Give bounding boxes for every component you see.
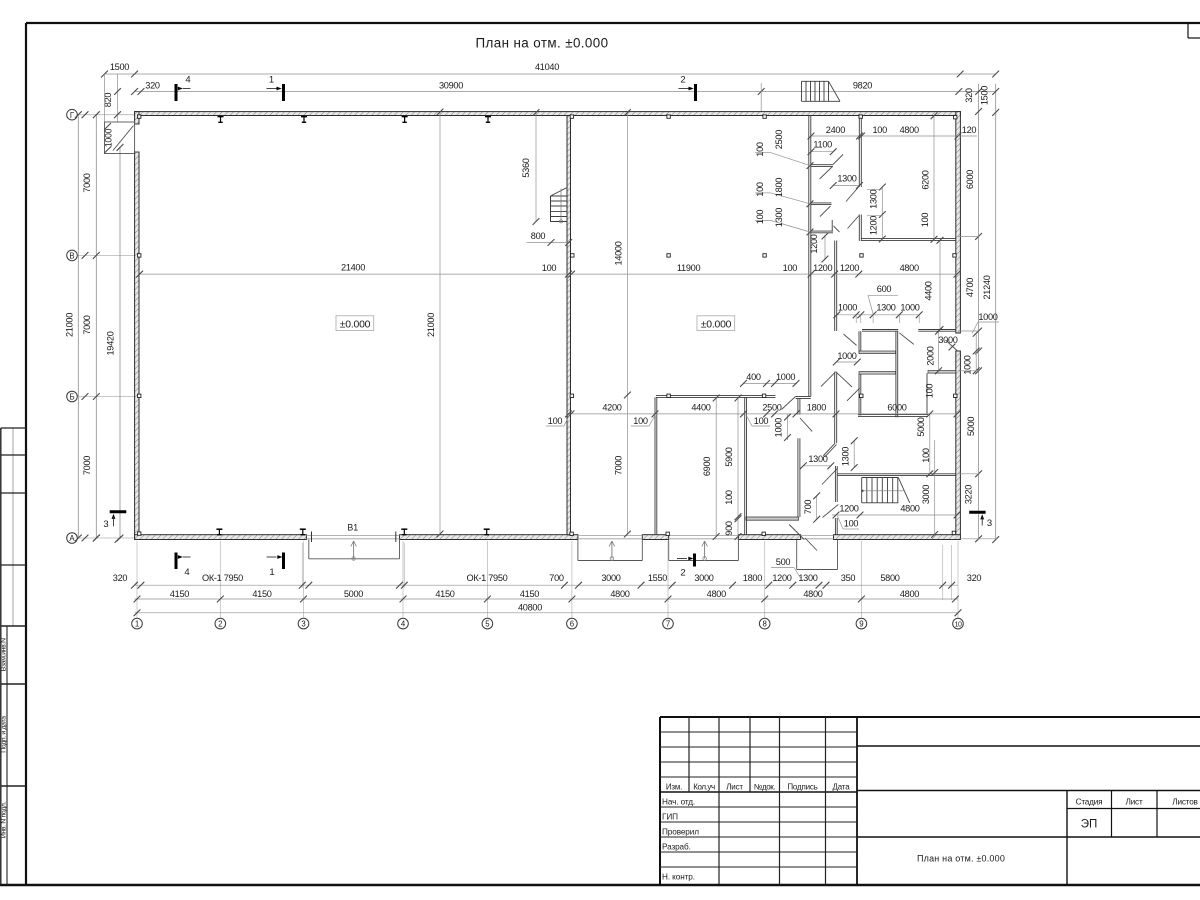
svg-text:1300: 1300 (876, 302, 895, 312)
svg-text:500: 500 (776, 557, 791, 567)
svg-text:4150: 4150 (435, 589, 454, 599)
svg-text:В: В (69, 252, 74, 261)
svg-text:1200: 1200 (839, 503, 858, 513)
svg-text:7: 7 (666, 620, 670, 629)
svg-text:1: 1 (269, 567, 274, 578)
svg-text:6: 6 (570, 620, 574, 629)
svg-text:ОК-1 7950: ОК-1 7950 (467, 573, 508, 583)
svg-text:Дата: Дата (833, 783, 851, 792)
svg-text:1300: 1300 (869, 189, 879, 208)
svg-text:9820: 9820 (853, 80, 872, 90)
svg-text:100: 100 (633, 416, 648, 426)
svg-text:5: 5 (485, 620, 490, 629)
svg-text:19420: 19420 (106, 331, 116, 355)
svg-text:5360: 5360 (521, 158, 531, 177)
svg-text:320: 320 (964, 88, 974, 103)
svg-text:4800: 4800 (900, 503, 919, 513)
svg-text:1000: 1000 (838, 302, 857, 312)
svg-text:Изм.: Изм. (666, 783, 682, 792)
svg-text:600: 600 (877, 284, 892, 294)
svg-text:100: 100 (724, 490, 734, 505)
svg-text:10: 10 (955, 622, 962, 629)
svg-text:Листов: Листов (1172, 798, 1197, 807)
svg-text:2400: 2400 (826, 125, 845, 135)
svg-text:21000: 21000 (65, 313, 75, 337)
svg-text:5800: 5800 (880, 573, 899, 583)
svg-text:1200: 1200 (813, 263, 832, 273)
svg-text:100: 100 (783, 263, 798, 273)
svg-text:7000: 7000 (82, 456, 92, 475)
svg-text:1000: 1000 (963, 355, 973, 374)
svg-text:4800: 4800 (900, 125, 919, 135)
svg-text:ОК-1 7950: ОК-1 7950 (202, 573, 243, 583)
svg-text:4: 4 (185, 75, 190, 86)
svg-text:41040: 41040 (535, 62, 559, 72)
svg-text:100: 100 (755, 182, 765, 197)
svg-text:4: 4 (401, 620, 406, 629)
svg-text:4400: 4400 (691, 402, 710, 412)
svg-text:1500: 1500 (980, 86, 990, 105)
svg-text:Н. контр.: Н. контр. (662, 873, 695, 882)
svg-text:6000: 6000 (965, 170, 975, 189)
svg-text:Проверил: Проверил (662, 828, 699, 837)
svg-text:100: 100 (548, 416, 563, 426)
svg-text:350: 350 (841, 573, 856, 583)
svg-text:7000: 7000 (82, 315, 92, 334)
svg-text:4800: 4800 (707, 589, 726, 599)
svg-text:100: 100 (921, 448, 931, 463)
svg-text:Стадия: Стадия (1076, 798, 1103, 807)
svg-text:Б: Б (69, 393, 74, 402)
svg-text:Разраб.: Разраб. (662, 843, 691, 852)
svg-text:1000: 1000 (837, 351, 856, 361)
svg-text:21240: 21240 (982, 275, 992, 299)
svg-text:7000: 7000 (613, 456, 623, 475)
svg-text:5000: 5000 (916, 417, 926, 436)
svg-text:ЭП: ЭП (1081, 819, 1098, 831)
svg-text:14000: 14000 (613, 241, 623, 265)
svg-text:ГИП: ГИП (662, 813, 678, 822)
svg-text:2000: 2000 (926, 346, 936, 365)
svg-text:1300: 1300 (774, 208, 784, 227)
svg-text:100: 100 (542, 263, 557, 273)
svg-text:1300: 1300 (841, 447, 851, 466)
svg-text:Взам.инв.N: Взам.инв.N (1, 638, 8, 671)
svg-text:Подп. и дата: Подп. и дата (1, 716, 8, 753)
svg-text:4700: 4700 (965, 278, 975, 297)
svg-text:Лист: Лист (1126, 798, 1143, 807)
svg-text:Лист: Лист (726, 783, 743, 792)
svg-text:1200: 1200 (809, 234, 819, 253)
svg-text:1000: 1000 (776, 372, 795, 382)
svg-text:6900: 6900 (702, 457, 712, 476)
svg-text:План на отм. ±0.000: План на отм. ±0.000 (476, 36, 609, 51)
svg-text:1800: 1800 (807, 402, 826, 412)
svg-text:100: 100 (872, 125, 887, 135)
svg-text:100: 100 (844, 519, 859, 529)
svg-text:800: 800 (531, 231, 546, 241)
svg-text:4400: 4400 (924, 281, 934, 300)
svg-text:1200: 1200 (840, 263, 859, 273)
svg-text:1200: 1200 (869, 216, 879, 235)
svg-text:320: 320 (113, 573, 128, 583)
svg-text:1550: 1550 (648, 573, 667, 583)
svg-text:3: 3 (103, 519, 108, 530)
svg-text:21400: 21400 (341, 263, 365, 273)
svg-text:4200: 4200 (602, 402, 621, 412)
svg-text:2500: 2500 (762, 402, 781, 412)
svg-text:1300: 1300 (798, 573, 817, 583)
svg-text:8: 8 (763, 620, 767, 629)
svg-text:100: 100 (920, 213, 930, 228)
svg-text:6000: 6000 (887, 402, 906, 412)
svg-text:Нач. отд.: Нач. отд. (662, 798, 695, 807)
svg-text:4150: 4150 (252, 589, 271, 599)
svg-text:100: 100 (755, 210, 765, 225)
svg-text:3: 3 (301, 620, 305, 629)
svg-text:120: 120 (962, 125, 977, 135)
svg-text:3000: 3000 (694, 573, 713, 583)
svg-text:5000: 5000 (966, 417, 976, 436)
svg-text:±0.000: ±0.000 (340, 319, 371, 330)
svg-text:5000: 5000 (344, 589, 363, 599)
svg-text:План на отм. ±0.000: План на отм. ±0.000 (917, 854, 1005, 864)
svg-text:700: 700 (549, 573, 564, 583)
svg-text:А: А (69, 534, 75, 543)
svg-text:900: 900 (724, 521, 734, 536)
svg-text:3000: 3000 (601, 573, 620, 583)
svg-text:1300: 1300 (808, 454, 827, 464)
svg-text:5900: 5900 (724, 447, 734, 466)
svg-text:1: 1 (135, 620, 139, 629)
svg-text:2: 2 (680, 568, 685, 579)
svg-text:1500: 1500 (110, 62, 129, 72)
svg-text:1000: 1000 (900, 302, 919, 312)
svg-text:3: 3 (987, 518, 992, 529)
svg-text:1200: 1200 (772, 573, 791, 583)
svg-text:40800: 40800 (518, 603, 542, 613)
svg-text:6200: 6200 (920, 170, 930, 189)
svg-text:Инв. N подл.: Инв. N подл. (1, 801, 8, 838)
svg-text:4800: 4800 (900, 589, 919, 599)
svg-text:100: 100 (755, 142, 765, 157)
svg-text:1100: 1100 (813, 140, 832, 150)
svg-text:1: 1 (269, 75, 274, 86)
svg-text:11900: 11900 (677, 263, 701, 273)
svg-text:±0.000: ±0.000 (701, 319, 732, 330)
svg-text:9: 9 (859, 620, 863, 629)
svg-text:№док.: №док. (754, 783, 776, 792)
svg-text:Кол.уч: Кол.уч (693, 783, 715, 792)
svg-text:100: 100 (925, 384, 935, 399)
svg-text:2: 2 (218, 620, 222, 629)
svg-text:1000: 1000 (978, 312, 997, 322)
svg-text:1800: 1800 (743, 573, 762, 583)
svg-text:100: 100 (754, 416, 769, 426)
svg-text:700: 700 (803, 500, 813, 515)
svg-text:30900: 30900 (439, 80, 463, 90)
svg-text:3220: 3220 (964, 485, 974, 504)
svg-text:1000: 1000 (104, 128, 114, 147)
svg-text:7000: 7000 (82, 173, 92, 192)
svg-text:1800: 1800 (774, 178, 784, 197)
svg-text:1300: 1300 (837, 174, 856, 184)
svg-text:4150: 4150 (170, 589, 189, 599)
svg-text:320: 320 (967, 573, 982, 583)
svg-text:3000: 3000 (921, 485, 931, 504)
svg-text:21000: 21000 (426, 313, 436, 337)
svg-text:4800: 4800 (803, 589, 822, 599)
svg-text:320: 320 (145, 80, 160, 90)
svg-text:4150: 4150 (520, 589, 539, 599)
svg-text:1000: 1000 (774, 418, 784, 437)
svg-text:2: 2 (680, 75, 685, 86)
svg-text:4800: 4800 (610, 589, 629, 599)
svg-text:Подпись: Подпись (787, 783, 817, 792)
svg-text:В1: В1 (347, 523, 358, 533)
svg-text:4800: 4800 (900, 263, 919, 273)
svg-text:4: 4 (184, 567, 189, 578)
svg-text:2500: 2500 (774, 130, 784, 149)
svg-text:400: 400 (746, 372, 761, 382)
